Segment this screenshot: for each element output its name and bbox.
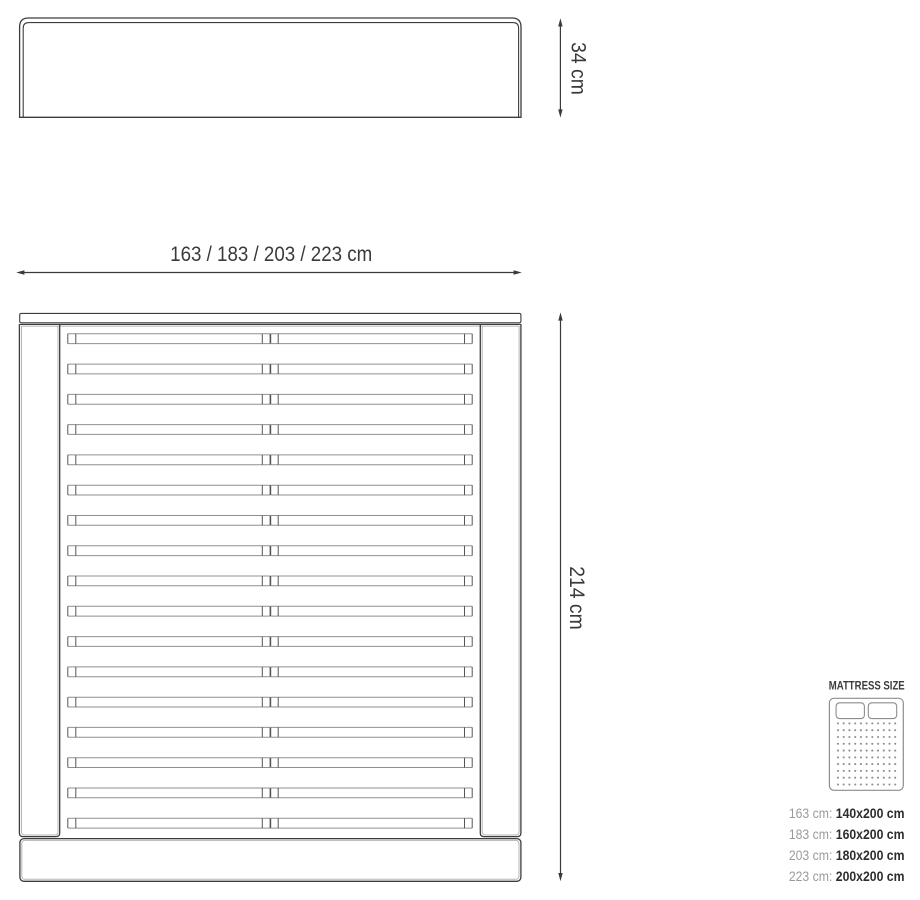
svg-text:203 cm: 180x200 cm: 203 cm: 180x200 cm	[789, 847, 905, 863]
svg-text:163 / 183 / 203 / 223 cm: 163 / 183 / 203 / 223 cm	[170, 243, 372, 266]
svg-text:MATTRESS SIZE: MATTRESS SIZE	[829, 679, 905, 692]
svg-text:223 cm: 200x200 cm: 223 cm: 200x200 cm	[789, 868, 905, 884]
svg-text:163 cm: 140x200 cm: 163 cm: 140x200 cm	[789, 805, 905, 821]
svg-text:183 cm: 160x200 cm: 183 cm: 160x200 cm	[789, 826, 905, 842]
svg-text:34 cm: 34 cm	[566, 42, 590, 95]
svg-text:214 cm: 214 cm	[565, 566, 589, 629]
